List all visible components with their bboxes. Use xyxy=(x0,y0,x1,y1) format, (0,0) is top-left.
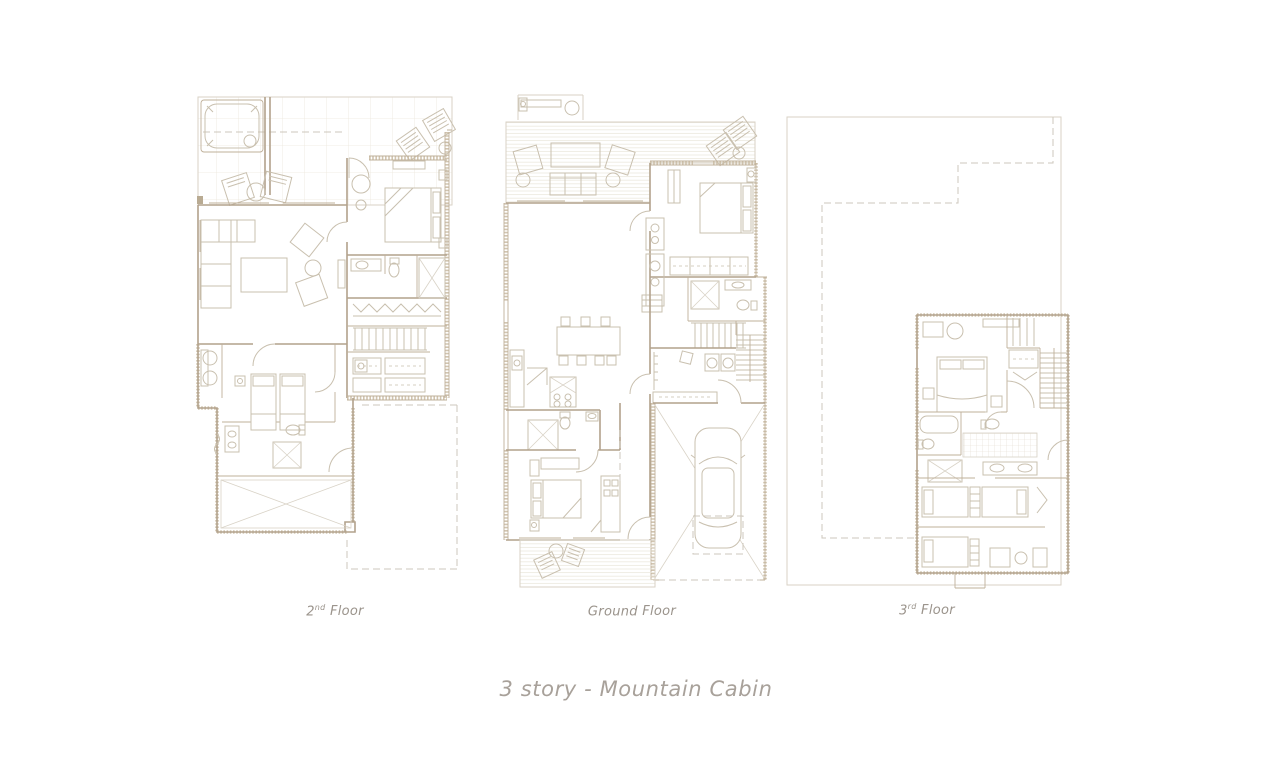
floor-plan-3rd-floor xyxy=(785,110,1075,595)
bedroom-ground xyxy=(668,168,756,275)
entry-porch xyxy=(518,95,583,120)
bathroom-2f xyxy=(351,255,445,298)
hall-buffet xyxy=(642,218,664,312)
floor-plan-sheet: 2ndFloor GroundFloor 3rdFloor 3 story - … xyxy=(0,0,1270,780)
bathroom2-3f xyxy=(917,419,1068,478)
kitchen xyxy=(510,350,576,407)
builtins-2f xyxy=(353,358,425,392)
bathroom-3f xyxy=(917,412,962,482)
closet-2f xyxy=(347,304,447,326)
powder-room-2f xyxy=(201,350,217,386)
bedroom2-ground xyxy=(506,403,620,540)
bathroom-ground xyxy=(688,277,765,321)
roof-outline-2f xyxy=(347,405,457,569)
stairs-2f xyxy=(347,328,430,352)
floor-plan-2nd-floor xyxy=(195,92,461,598)
chimney-marker xyxy=(197,196,203,204)
bedroom-3f xyxy=(917,319,1019,428)
dining-area xyxy=(557,317,620,365)
page-title: 3 story - Mountain Cabin xyxy=(436,677,836,701)
stairs-3f xyxy=(1007,315,1068,412)
stairs-ground xyxy=(691,321,765,382)
living-room-2f xyxy=(201,220,345,308)
bathroom2-2f xyxy=(215,425,354,472)
open-to-below xyxy=(221,480,351,528)
floor-plan-ground-floor xyxy=(503,92,773,592)
rear-deck xyxy=(520,540,655,587)
label-2nd-floor: 2ndFloor xyxy=(270,603,400,619)
garage xyxy=(651,380,765,580)
mudroom xyxy=(650,348,736,403)
bathroom2-ground xyxy=(506,410,600,450)
label-ground-floor: GroundFloor xyxy=(567,603,697,619)
label-3rd-floor: 3rdFloor xyxy=(862,602,992,618)
